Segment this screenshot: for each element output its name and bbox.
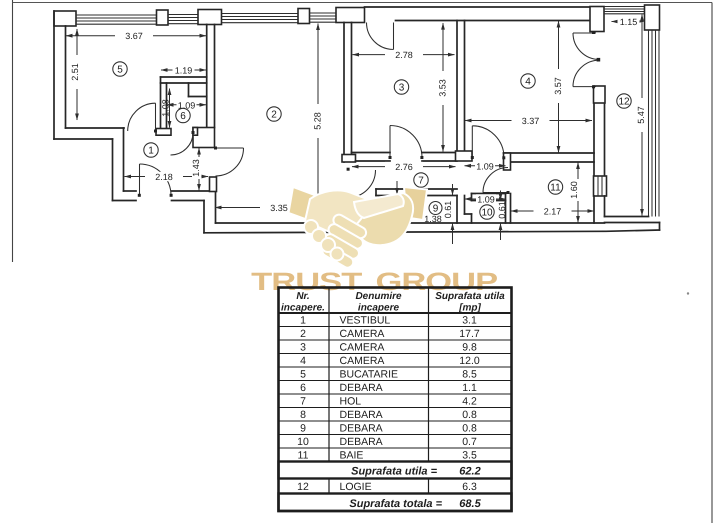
svg-text:1: 1 <box>148 146 154 157</box>
svg-text:4.2: 4.2 <box>462 395 477 407</box>
svg-text:1.09: 1.09 <box>476 161 494 171</box>
svg-text:10: 10 <box>481 208 493 219</box>
svg-text:2.17: 2.17 <box>544 207 562 217</box>
svg-text:8.5: 8.5 <box>462 368 477 380</box>
svg-text:17.7: 17.7 <box>459 328 480 340</box>
svg-text:3.67: 3.67 <box>125 31 143 41</box>
svg-text:6: 6 <box>180 111 186 122</box>
svg-text:BUCATARIE: BUCATARIE <box>340 368 399 380</box>
svg-text:0.8: 0.8 <box>462 422 477 434</box>
svg-text:5: 5 <box>117 65 123 76</box>
svg-text:CAMERA: CAMERA <box>340 341 385 353</box>
svg-text:CAMERA: CAMERA <box>340 355 385 367</box>
svg-text:9: 9 <box>300 422 306 434</box>
svg-text:DEBARA: DEBARA <box>340 422 383 434</box>
svg-text:BAIE: BAIE <box>340 449 364 461</box>
svg-text:LOGIE: LOGIE <box>340 481 372 493</box>
svg-text:0.61: 0.61 <box>443 201 453 219</box>
svg-text:5: 5 <box>300 368 306 380</box>
svg-text:7: 7 <box>418 176 424 187</box>
svg-text:3.57: 3.57 <box>553 77 563 95</box>
svg-text:5.47: 5.47 <box>636 106 646 124</box>
svg-text:[mp]: [mp] <box>458 303 481 314</box>
svg-text:5.28: 5.28 <box>312 112 322 130</box>
svg-text:2: 2 <box>271 110 277 121</box>
svg-text:10: 10 <box>297 436 309 448</box>
svg-text:3.5: 3.5 <box>462 449 477 461</box>
svg-text:1.09: 1.09 <box>477 195 495 205</box>
svg-text:3.1: 3.1 <box>462 314 477 326</box>
svg-text:Suprafata totala =: Suprafata totala = <box>349 498 442 510</box>
svg-text:62.2: 62.2 <box>459 466 480 478</box>
svg-text:11: 11 <box>298 449 309 461</box>
svg-text:2.76: 2.76 <box>395 162 413 172</box>
svg-text:incapere.: incapere. <box>281 303 325 314</box>
svg-text:11: 11 <box>550 183 561 194</box>
svg-text:12.0: 12.0 <box>459 355 480 367</box>
svg-text:1.60: 1.60 <box>569 181 579 199</box>
svg-text:Suprafata utila: Suprafata utila <box>435 291 505 302</box>
svg-text:1.43: 1.43 <box>191 159 201 177</box>
svg-text:12: 12 <box>618 97 630 108</box>
svg-text:2.78: 2.78 <box>395 50 413 60</box>
svg-text:VESTIBUL: VESTIBUL <box>340 314 391 326</box>
svg-text:8: 8 <box>300 409 306 421</box>
svg-text:7: 7 <box>300 395 306 407</box>
svg-text:1.1: 1.1 <box>462 382 477 394</box>
svg-text:DEBARA: DEBARA <box>340 382 383 394</box>
svg-text:0.8: 0.8 <box>462 409 477 421</box>
svg-text:DEBARA: DEBARA <box>340 409 383 421</box>
svg-text:1.38: 1.38 <box>424 214 442 224</box>
svg-text:2: 2 <box>300 328 306 340</box>
svg-text:HOL: HOL <box>340 395 362 407</box>
svg-text:1.15: 1.15 <box>620 17 638 27</box>
svg-text:4: 4 <box>525 77 531 88</box>
svg-text:CAMERA: CAMERA <box>340 328 385 340</box>
svg-text:1.08: 1.08 <box>160 99 170 117</box>
svg-text:1.19: 1.19 <box>175 66 193 76</box>
svg-text:0.7: 0.7 <box>462 436 477 448</box>
svg-text:3.37: 3.37 <box>522 116 540 126</box>
svg-text:4: 4 <box>300 355 306 367</box>
svg-text:1: 1 <box>300 314 306 326</box>
svg-text:Suprafata utila =: Suprafata utila = <box>351 466 437 478</box>
svg-text:68.5: 68.5 <box>459 498 481 510</box>
svg-text:3.53: 3.53 <box>437 79 447 97</box>
svg-text:Nr.: Nr. <box>296 291 309 302</box>
svg-text:6: 6 <box>300 382 306 394</box>
svg-text:2.51: 2.51 <box>70 63 80 81</box>
svg-text:incapere: incapere <box>358 303 400 314</box>
svg-text:2.18: 2.18 <box>155 172 173 182</box>
svg-text:9: 9 <box>433 204 439 215</box>
svg-text:Denumire: Denumire <box>355 291 402 302</box>
svg-text:12: 12 <box>297 481 309 493</box>
svg-text:0.61: 0.61 <box>497 201 507 219</box>
svg-text:3.35: 3.35 <box>270 203 288 213</box>
svg-text:3: 3 <box>399 83 405 94</box>
svg-text:9.8: 9.8 <box>462 341 477 353</box>
svg-text:6.3: 6.3 <box>462 481 477 493</box>
svg-text:DEBARA: DEBARA <box>340 436 383 448</box>
svg-text:3: 3 <box>300 341 306 353</box>
